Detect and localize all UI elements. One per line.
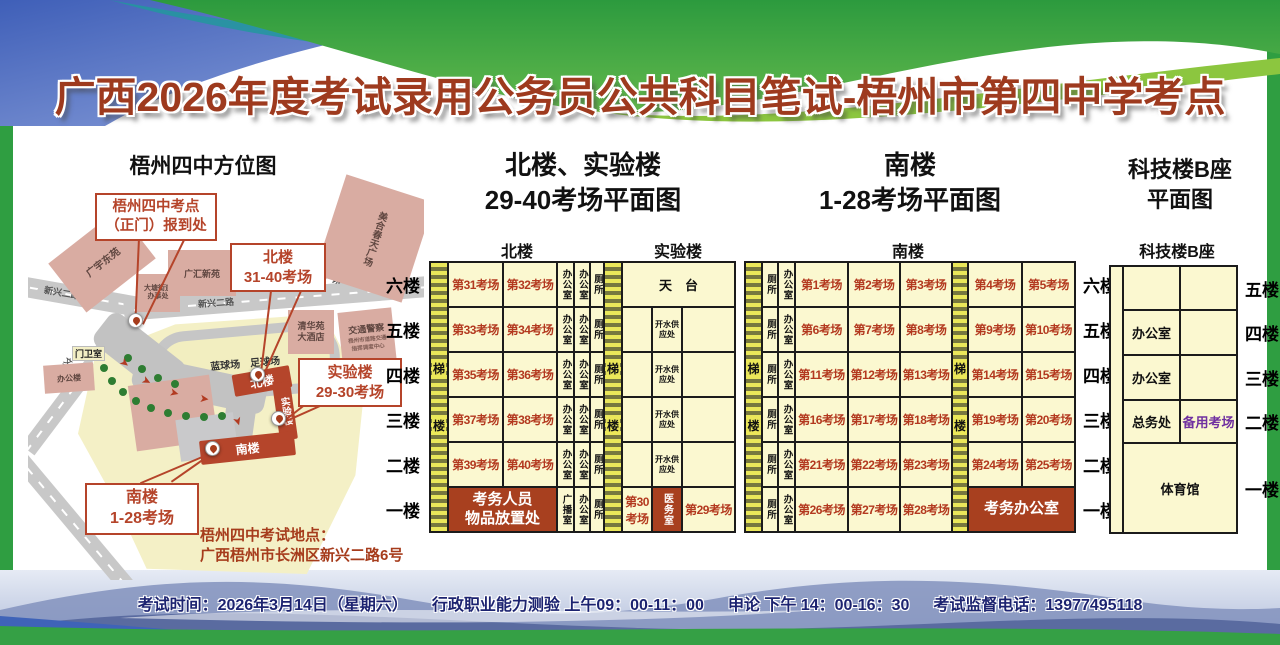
plan-cell: 天 台	[622, 262, 735, 307]
callout-south: 南楼1-28考场	[85, 483, 199, 535]
plan-cell: 办公室	[574, 397, 590, 442]
plan-cell: 第8考场	[900, 307, 952, 352]
plan-cell: 办公室	[574, 307, 590, 352]
plan-cell: 第24考场	[968, 442, 1022, 487]
plan-cell: 第2考场	[848, 262, 900, 307]
stair-column: 梯楼	[745, 262, 762, 532]
tree-dot	[182, 412, 190, 420]
plan-cell: 考务办公室	[968, 487, 1075, 532]
south-plan-grid: 梯楼梯楼厕所办公室第1考场第2考场第3考场第4考场第5考场厕所办公室第6考场第7…	[745, 262, 1075, 532]
plan-cell: 办公室	[778, 352, 795, 397]
plan-cell: 第33考场	[448, 307, 503, 352]
plan-cell	[682, 397, 735, 442]
exam-info-bar: 考试时间：2026年3月14日（星期六） 行政职业能力测验 上午09：00-11…	[0, 591, 1280, 615]
plan-cell: 第17考场	[848, 397, 900, 442]
plan-cell: 办公室	[778, 262, 795, 307]
exam-subject-morning: 行政职业能力测验 上午09：00-11：00	[432, 591, 704, 615]
plan-cell: 第32考场	[503, 262, 557, 307]
plan-cell: 办公室	[557, 262, 574, 307]
plan-cell: 第3考场	[900, 262, 952, 307]
plan-cell: 办公室	[557, 442, 574, 487]
plan-cell	[1180, 310, 1237, 355]
plan-cell: 第5考场	[1022, 262, 1075, 307]
floor-label: 五楼	[1241, 266, 1280, 310]
plan-cell: 厕所	[590, 262, 604, 307]
plan-cell: 第9考场	[968, 307, 1022, 352]
plan-cell: 办公室	[778, 307, 795, 352]
south-section-header: 南楼	[858, 238, 958, 262]
stair-column: 梯楼	[952, 262, 968, 532]
plan-cell: 办公室	[1123, 310, 1180, 355]
tree-dot	[200, 413, 208, 421]
plan-cell: 第40考场	[503, 442, 557, 487]
plan-cell	[622, 442, 652, 487]
stair-column: 梯楼	[430, 262, 448, 532]
supervision-phone: 考试监督电话：13977495118	[933, 591, 1142, 615]
plan-cell: 第16考场	[795, 397, 848, 442]
plan-cell: 厕所	[762, 262, 778, 307]
tree-dot	[108, 377, 116, 385]
plan-cell: 第22考场	[848, 442, 900, 487]
plan-cell: 第11考场	[795, 352, 848, 397]
plan-cell: 办公室	[557, 307, 574, 352]
exam-subject-afternoon: 申论 下午 14：00-16：30	[728, 591, 909, 615]
tree-dot	[147, 404, 155, 412]
plan-cell: 第4考场	[968, 262, 1022, 307]
building-office: 办公楼	[43, 362, 95, 393]
plan-cell: 厕所	[762, 487, 778, 532]
plan-cell: 第29考场	[682, 487, 735, 532]
page-title: 广西2026年度考试录用公务员公共科目笔试-梧州市第四中学考点	[0, 63, 1280, 123]
plan-cell: 办公室	[778, 397, 795, 442]
plan-cell: 办公室	[778, 487, 795, 532]
callout-gate: 梧州四中考点（正门）报到处	[95, 193, 217, 241]
gate-room-label: 门卫室	[72, 346, 105, 361]
plan-cell: 第35考场	[448, 352, 503, 397]
floor-label: 六楼	[384, 262, 424, 307]
plan-cell: 厕所	[590, 352, 604, 397]
plan-cell: 办公室	[574, 352, 590, 397]
plan-cell: 厕所	[590, 307, 604, 352]
plan-cell: 体育馆	[1123, 443, 1237, 533]
plan-cell: 第37考场	[448, 397, 503, 442]
plan-cell: 厕所	[762, 442, 778, 487]
plan-cell: 办公室	[574, 487, 590, 532]
tree-dot	[138, 365, 146, 373]
plan-cell: 第21考场	[795, 442, 848, 487]
plan-cell: 第12考场	[848, 352, 900, 397]
tree-dot	[154, 374, 162, 382]
location-map: 梧州四中方位图 新兴二路 新兴二路 往太阳广场方向 文澜路 蓝球场 足球场	[28, 128, 424, 580]
plan-cell: 开水供应处	[652, 442, 682, 487]
plan-cell: 办公室	[574, 262, 590, 307]
plan-cell	[622, 352, 652, 397]
plan-cell: 第20考场	[1022, 397, 1075, 442]
plan-cell: 厕所	[762, 307, 778, 352]
south-plan-title: 南楼1-28考场平面图	[780, 148, 1040, 218]
plan-cell: 第34考场	[503, 307, 557, 352]
floor-label: 一楼	[1241, 443, 1280, 533]
plan-cell: 厕所	[590, 397, 604, 442]
plan-cell: 厕所	[590, 442, 604, 487]
gate-pin-icon	[128, 313, 143, 328]
exam-venue-poster: 广西2026年度考试录用公务员公共科目笔试-梧州市第四中学考点 梧州四中方位图 …	[0, 0, 1280, 645]
plan-cell: 第25考场	[1022, 442, 1075, 487]
floor-label: 四楼	[384, 352, 424, 397]
plan-cell: 开水供应处	[652, 307, 682, 352]
plan-cell	[622, 307, 652, 352]
floor-labels-west: 六楼五楼四楼三楼二楼一楼	[384, 262, 424, 532]
plan-cell: 第30考场	[622, 487, 652, 532]
plan-cell: 第15考场	[1022, 352, 1075, 397]
plan-cell: 考务人员物品放置处	[448, 487, 557, 532]
plan-cell: 第39考场	[448, 442, 503, 487]
callout-north: 北楼31-40考场	[230, 243, 326, 292]
floor-label: 二楼	[384, 442, 424, 487]
floor-label: 一楼	[384, 487, 424, 532]
route-arrow	[199, 393, 209, 405]
plan-cell: 第36考场	[503, 352, 557, 397]
plan-cell: 第27考场	[848, 487, 900, 532]
plan-cell: 第14考场	[968, 352, 1022, 397]
plan-cell: 办公室	[557, 397, 574, 442]
plan-cell: 广播室	[557, 487, 574, 532]
exam-address-label: 梧州四中考试地点：	[200, 524, 335, 545]
plan-cell	[1123, 266, 1180, 310]
plan-cell: 第26考场	[795, 487, 848, 532]
plan-cell: 第6考场	[795, 307, 848, 352]
tech-plan-title: 科技楼B座平面图	[1105, 155, 1255, 214]
building-qinghua: 清华苑大酒店	[288, 310, 334, 354]
floor-label: 二楼	[1241, 400, 1280, 443]
tech-plan-grid: 办公室办公室总务处备用考场体育馆	[1110, 266, 1237, 533]
north-lab-plan-grid: 梯楼梯楼第31考场第32考场办公室办公室厕所天 台第33考场第34考场办公室办公…	[430, 262, 735, 532]
exam-time: 考试时间：2026年3月14日（星期六）	[138, 591, 408, 615]
road-label-xinxing-main: 新兴二路	[198, 295, 235, 310]
plan-cell: 第18考场	[900, 397, 952, 442]
plan-cell: 第28考场	[900, 487, 952, 532]
plan-cell: 办公室	[557, 352, 574, 397]
plan-cell: 开水供应处	[652, 397, 682, 442]
building-guanghui: 广汇新苑	[168, 250, 236, 296]
plan-cell	[1180, 355, 1237, 400]
floor-labels-tech-east: 五楼四楼三楼二楼一楼	[1241, 266, 1280, 533]
north-section-header: 北楼	[467, 238, 567, 262]
tree-dot	[100, 364, 108, 372]
plan-cell: 第19考场	[968, 397, 1022, 442]
plan-cell: 办公室	[1123, 355, 1180, 400]
south-pin-icon	[205, 441, 220, 456]
plan-cell: 第13考场	[900, 352, 952, 397]
map-title: 梧州四中方位图	[28, 150, 378, 180]
floor-label: 三楼	[384, 397, 424, 442]
plan-cell: 备用考场	[1180, 400, 1237, 443]
lab-section-header: 实验楼	[628, 238, 728, 262]
tree-dot	[119, 388, 127, 396]
plan-cell: 第10考场	[1022, 307, 1075, 352]
plan-cell: 医务室	[652, 487, 682, 532]
exam-address: 广西梧州市长洲区新兴二路6号	[200, 544, 403, 565]
tree-dot	[132, 397, 140, 405]
plan-cell: 厕所	[762, 397, 778, 442]
plan-cell: 第1考场	[795, 262, 848, 307]
plan-cell: 开水供应处	[652, 352, 682, 397]
plan-cell: 第38考场	[503, 397, 557, 442]
plan-cell: 总务处	[1123, 400, 1180, 443]
plan-cell	[622, 397, 652, 442]
floor-label: 三楼	[1241, 355, 1280, 400]
plan-cell	[682, 352, 735, 397]
plan-cell: 第31考场	[448, 262, 503, 307]
plan-cell: 办公室	[778, 442, 795, 487]
floor-label: 五楼	[384, 307, 424, 352]
lab-pin-icon	[271, 411, 286, 426]
side-column	[1110, 266, 1123, 533]
plan-cell: 第23考场	[900, 442, 952, 487]
tech-section-header: 科技楼B座	[1127, 238, 1227, 262]
plan-cell: 厕所	[590, 487, 604, 532]
tree-dot	[164, 409, 172, 417]
plan-cell	[1180, 266, 1237, 310]
stair-column: 梯楼	[604, 262, 622, 532]
tree-dot	[218, 412, 226, 420]
plan-cell	[682, 307, 735, 352]
plan-cell: 第7考场	[848, 307, 900, 352]
plan-cell: 办公室	[574, 442, 590, 487]
plan-cell: 厕所	[762, 352, 778, 397]
north-pin-icon	[250, 367, 265, 382]
plan-cell	[682, 442, 735, 487]
north-lab-plan-title: 北楼、实验楼29-40考场平面图	[453, 148, 713, 218]
floor-label: 四楼	[1241, 310, 1280, 355]
